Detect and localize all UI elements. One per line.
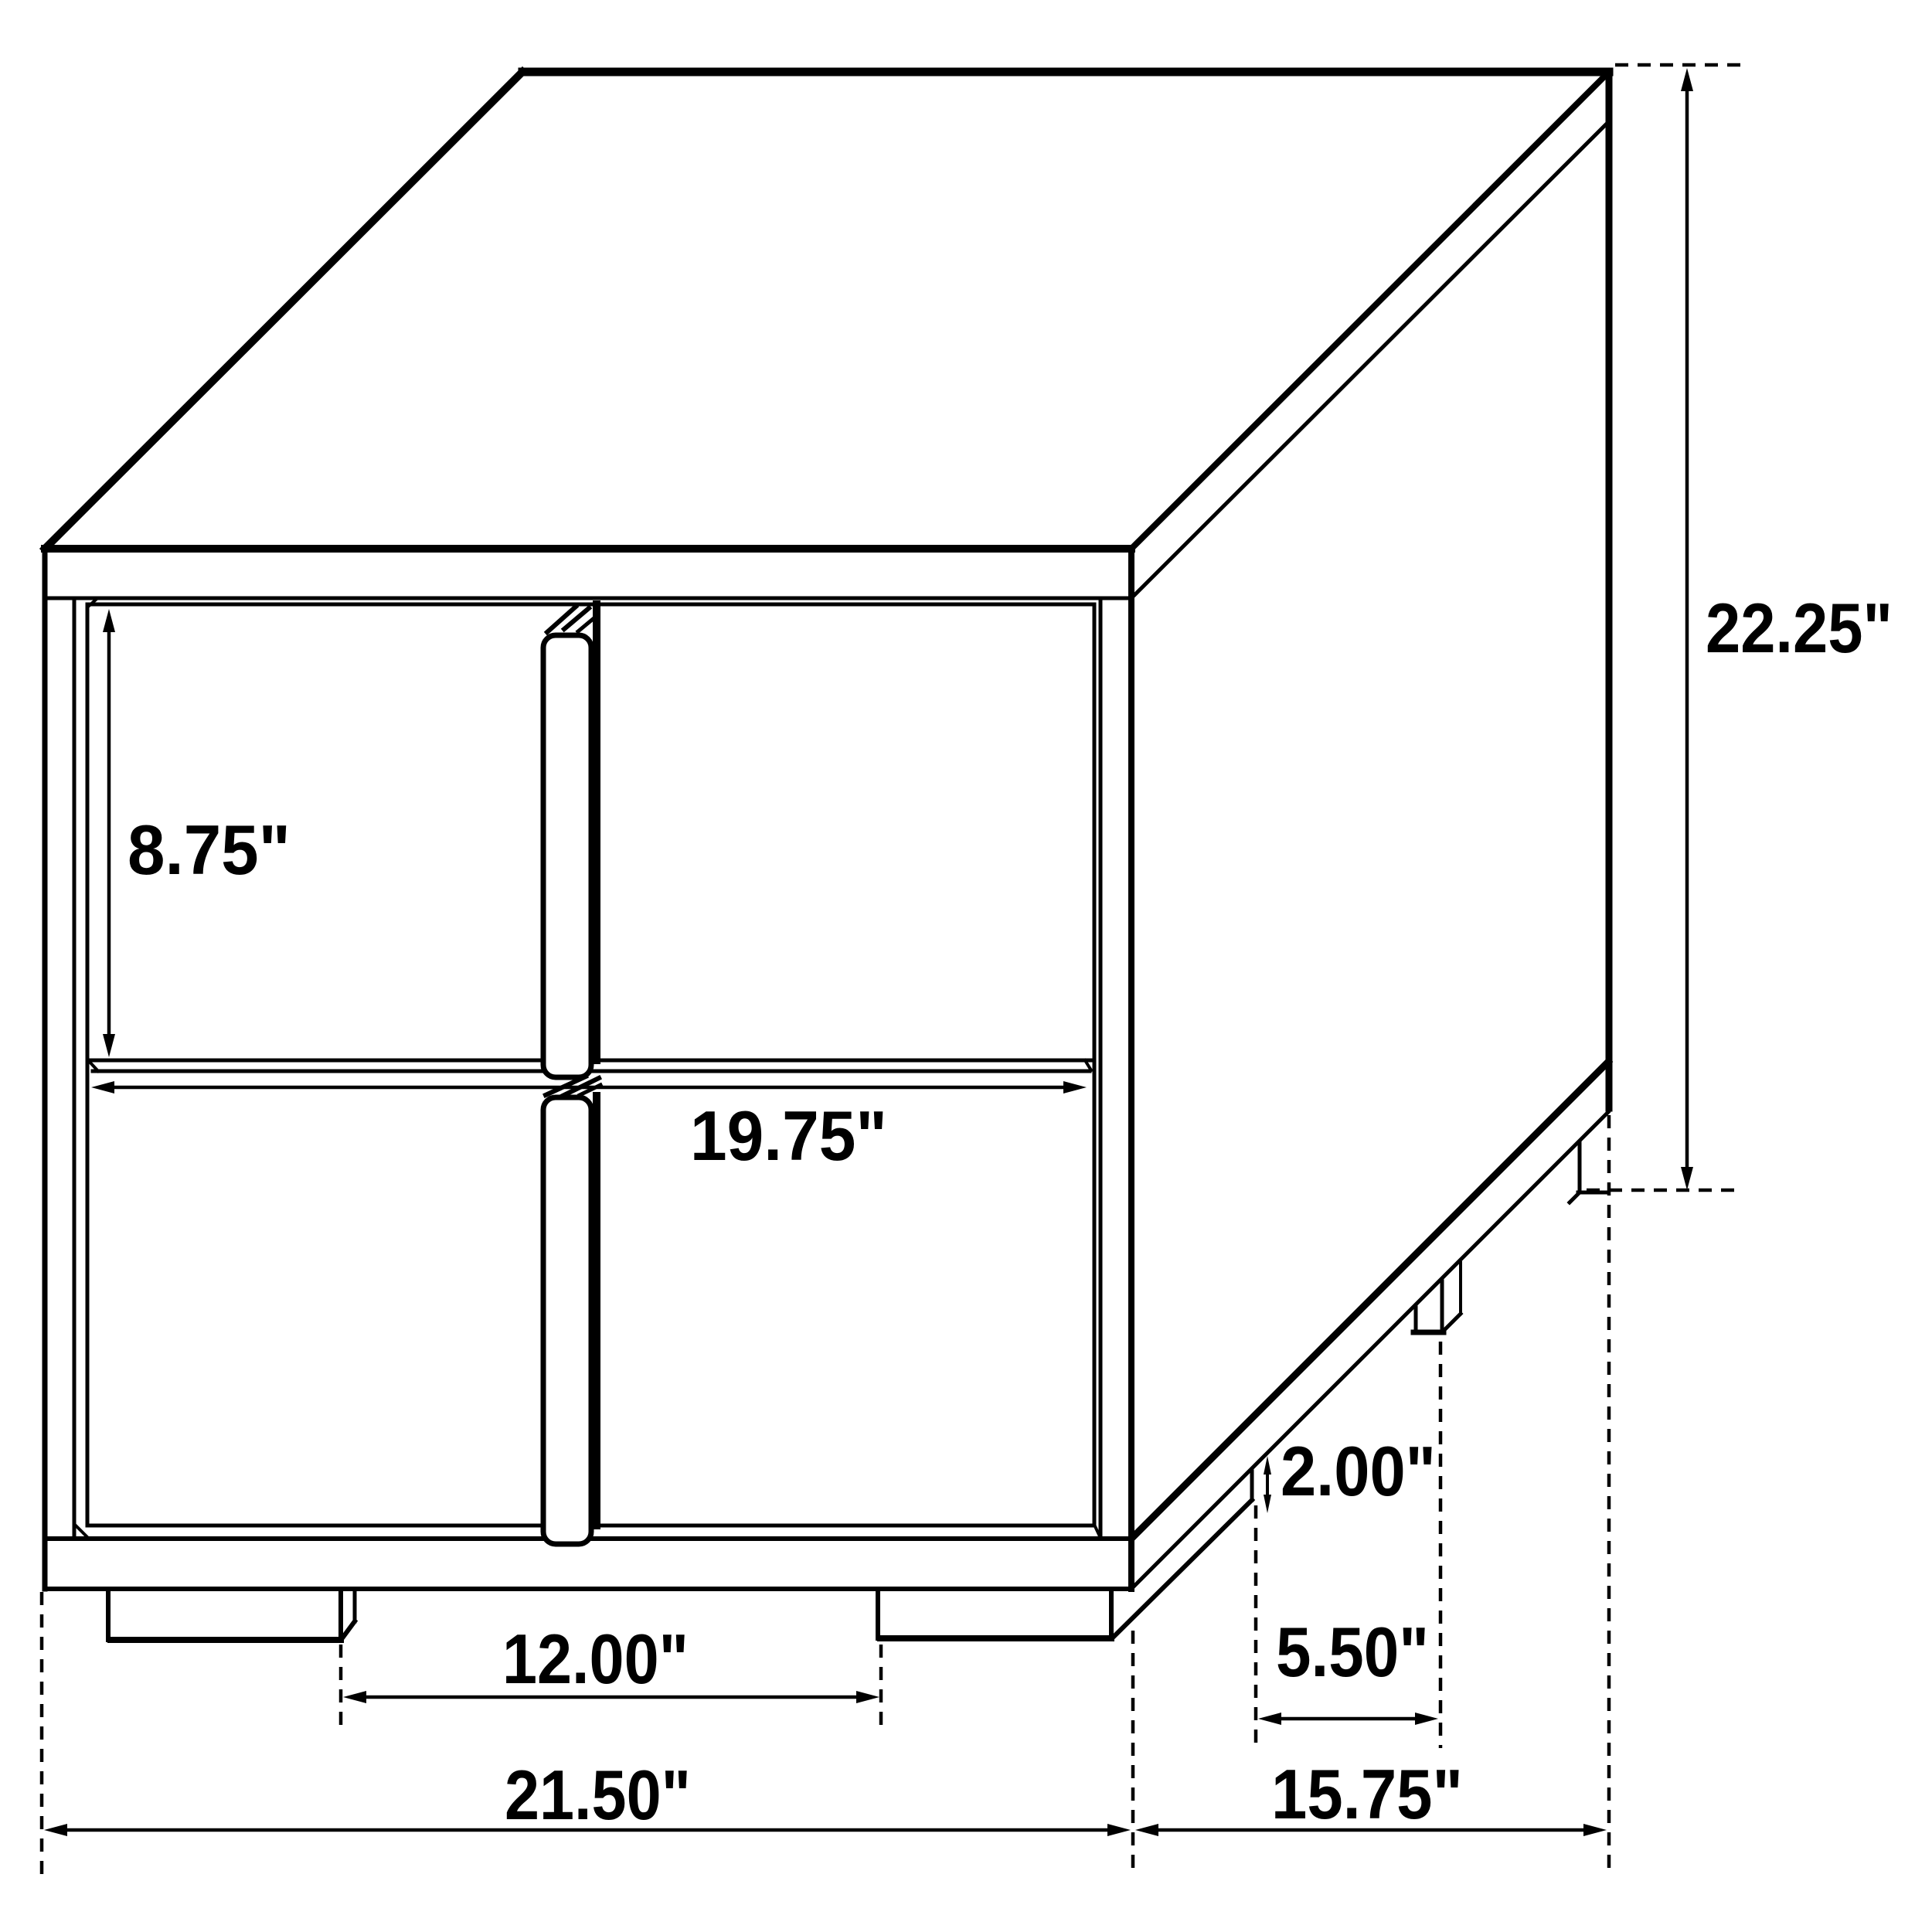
svg-text:12.00": 12.00" (502, 1621, 689, 1699)
svg-text:22.25": 22.25" (1706, 590, 1893, 668)
svg-text:8.75": 8.75" (128, 811, 291, 889)
svg-text:19.75": 19.75" (690, 1097, 887, 1175)
svg-text:21.50": 21.50" (505, 1757, 691, 1835)
svg-text:2.00": 2.00" (1281, 1433, 1436, 1511)
svg-text:15.75": 15.75" (1271, 1756, 1463, 1834)
svg-text:5.50": 5.50" (1276, 1614, 1429, 1692)
